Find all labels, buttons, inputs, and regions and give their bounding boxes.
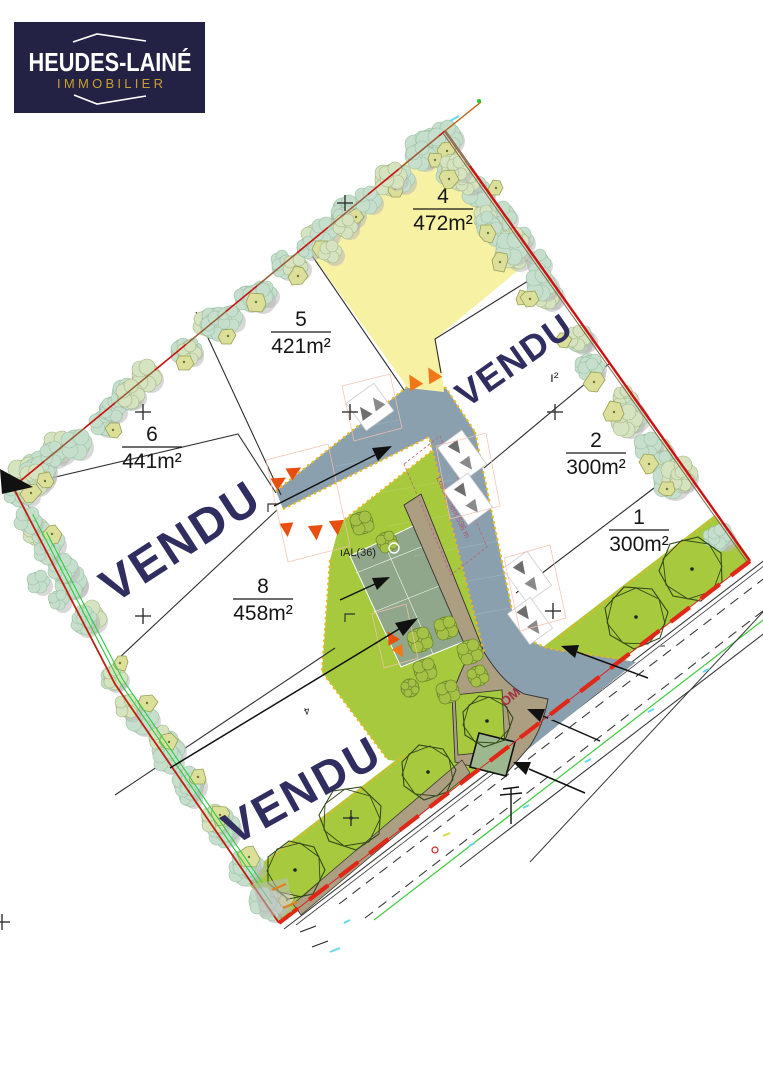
svg-text:4: 4 <box>437 185 449 208</box>
svg-text:1: 1 <box>633 506 645 529</box>
svg-text:441m²: 441m² <box>122 450 182 473</box>
svg-text:ı²: ı² <box>550 369 559 385</box>
svg-text:472m²: 472m² <box>413 212 473 235</box>
svg-text:300m²: 300m² <box>566 456 626 479</box>
svg-text:ıAL(36): ıAL(36) <box>340 547 376 559</box>
svg-text:5: 5 <box>295 308 307 331</box>
svg-text:300m²: 300m² <box>609 533 669 556</box>
svg-text:HEUDES-LAINÉ: HEUDES-LAINÉ <box>29 47 192 77</box>
svg-text:IMMOBILIER: IMMOBILIER <box>57 76 163 91</box>
svg-text:421m²: 421m² <box>271 335 331 358</box>
svg-text:8: 8 <box>257 575 269 598</box>
svg-text:6: 6 <box>146 423 158 446</box>
svg-text:458m²: 458m² <box>233 602 293 625</box>
svg-text:2: 2 <box>590 429 602 452</box>
